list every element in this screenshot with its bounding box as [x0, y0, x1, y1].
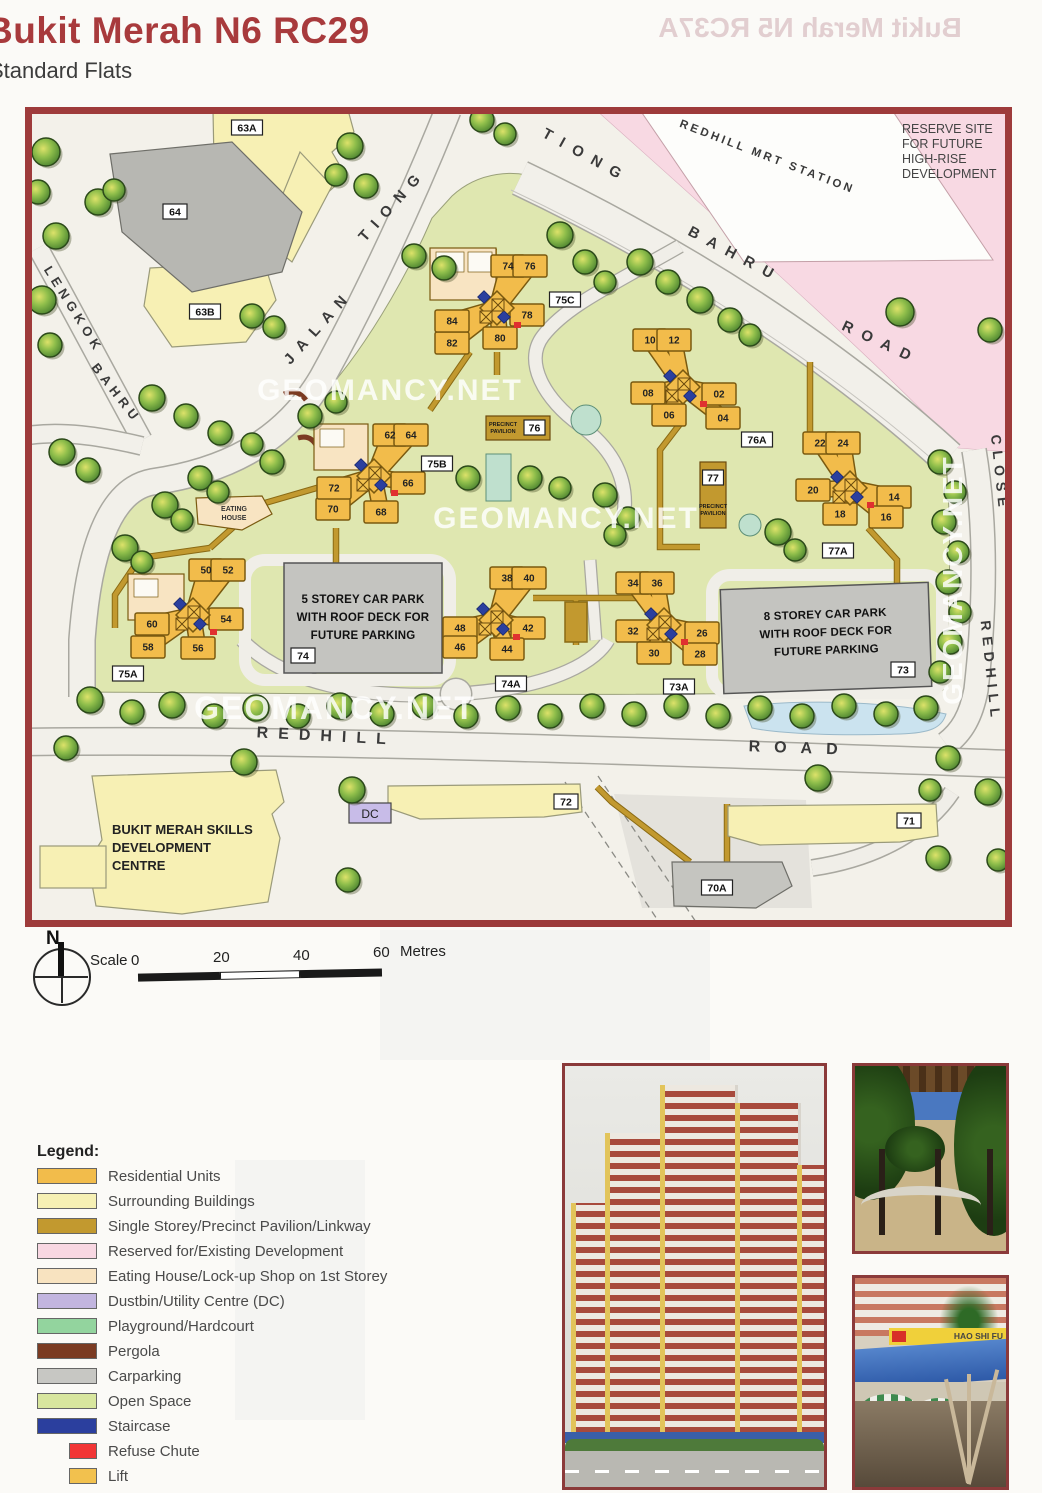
tree-icon: [131, 551, 153, 573]
scanned-page: Bukit Merah N6 RC29 Standard Flats Bukit…: [0, 0, 1042, 1493]
svg-text:RESERVE SITE: RESERVE SITE: [902, 122, 993, 136]
map-label-75A: 75A: [113, 666, 144, 681]
block-number: 76: [524, 262, 536, 273]
block-number: 58: [142, 643, 154, 654]
scale-unit: Metres: [400, 943, 446, 960]
tree-icon: [978, 318, 1002, 342]
tree-icon: [240, 304, 264, 328]
block-number: 38: [501, 574, 513, 585]
block-number: 06: [663, 411, 675, 422]
legend-label: Dustbin/Utility Centre (DC): [108, 1293, 285, 1310]
tower-block: [735, 1103, 801, 1433]
legend-swatch: [37, 1368, 97, 1384]
svg-text:63B: 63B: [195, 307, 215, 319]
tree-icon: [926, 846, 950, 870]
map-label-77A: 77A: [823, 543, 854, 558]
carpark5-text-2: WITH ROOF DECK FOR: [297, 612, 430, 624]
svg-text:77: 77: [707, 473, 719, 485]
block-number: 82: [446, 339, 458, 350]
tree-icon: [120, 700, 144, 724]
refuse-chute-icon: [513, 634, 520, 640]
site-map: EATING HOUSE 5 STOREY CAR PARK WITH ROOF…: [25, 107, 1012, 927]
tree-icon: [975, 779, 1001, 805]
linkway-shelter: [565, 602, 587, 642]
legend-swatch: [37, 1418, 97, 1434]
refuse-chute-icon: [700, 401, 707, 407]
legend-swatch: [37, 1293, 97, 1309]
legend-label: Refuse Chute: [108, 1443, 200, 1460]
block-number: 78: [521, 311, 533, 322]
block-number: 74: [502, 262, 514, 273]
legend-label: Residential Units: [108, 1168, 221, 1185]
scale-tick-40: 40: [293, 947, 310, 964]
block-number: 42: [522, 624, 534, 635]
tree-icon: [139, 385, 165, 411]
map-label-63A: 63A: [232, 120, 263, 135]
map-label-64: 64: [163, 204, 187, 219]
block-number: 84: [446, 317, 458, 328]
scale-tick-0: 0: [131, 952, 139, 969]
block-number: 40: [523, 574, 535, 585]
tree-icon: [456, 466, 480, 490]
tree-icon: [765, 519, 791, 545]
legend-label: Surrounding Buildings: [108, 1193, 255, 1210]
legend-label: Playground/Hardcourt: [108, 1318, 254, 1335]
block-number: 44: [501, 645, 513, 656]
block-number: 02: [713, 390, 725, 401]
tree-icon: [832, 694, 856, 718]
photo-road: [565, 1451, 824, 1487]
tree-icon: [936, 746, 960, 770]
svg-text:76: 76: [529, 423, 541, 435]
tree-icon: [987, 849, 1005, 871]
tree-icon: [573, 250, 597, 274]
map-label-76A: 76A: [742, 432, 773, 447]
block-number: 64: [405, 431, 417, 442]
eating-house-label-2: HOUSE: [222, 515, 247, 522]
block-number: 08: [642, 389, 654, 400]
legend-heading: Legend:: [37, 1143, 99, 1161]
map-label-74: 74: [291, 648, 315, 663]
svg-text:63A: 63A: [237, 123, 257, 135]
block-number: 36: [651, 579, 663, 590]
block-number: 20: [807, 486, 819, 497]
block-number: 30: [648, 649, 660, 660]
page-title: Bukit Merah N6 RC29: [0, 10, 370, 52]
svg-text:HIGH-RISE: HIGH-RISE: [902, 152, 967, 166]
watermark: GEOMANCY.NET: [433, 502, 699, 535]
block-number: 46: [454, 643, 466, 654]
svg-text:PAVILION: PAVILION: [490, 429, 515, 435]
map-label-74A: 74A: [496, 676, 527, 691]
block-number: 22: [814, 439, 826, 450]
block-number: 70: [327, 505, 339, 516]
tree-icon: [494, 123, 516, 145]
pergola-post: [987, 1149, 993, 1235]
tree-icon: [159, 692, 185, 718]
tree-icon: [580, 694, 604, 718]
svg-text:DEVELOPMENT: DEVELOPMENT: [112, 840, 211, 855]
watermark: GEOMANCY.NET: [257, 374, 523, 407]
legend-label: Pergola: [108, 1343, 160, 1360]
tree-icon: [43, 223, 69, 249]
svg-text:FOR FUTURE: FOR FUTURE: [902, 137, 983, 151]
tree-icon: [54, 736, 78, 760]
tree-icon: [208, 421, 232, 445]
block-number: 24: [837, 439, 849, 450]
tree-icon: [32, 180, 50, 204]
watermark: GEOMANCY.NET: [194, 690, 476, 726]
svg-text:PAVILION: PAVILION: [700, 511, 725, 517]
scale-tick-60: 60: [373, 944, 390, 961]
tree-icon: [549, 477, 571, 499]
svg-text:75B: 75B: [427, 459, 447, 471]
block-number: 28: [694, 650, 706, 661]
ghost-showthrough-title: Bukit Merah N5 RC37A: [610, 12, 1010, 44]
compass-needle: [58, 942, 64, 976]
tree-icon: [664, 694, 688, 718]
tree-icon: [298, 404, 322, 428]
scale-tick-20: 20: [213, 949, 230, 966]
watermark: GEOMANCY.NET: [937, 455, 968, 705]
legend-label: Lift: [108, 1468, 128, 1485]
tree-icon: [432, 256, 456, 280]
dc-label: DC: [361, 807, 379, 821]
tree-icon: [263, 316, 285, 338]
tree-icon: [790, 704, 814, 728]
tree-icon: [325, 164, 347, 186]
tower-blocks-photo: [562, 1063, 827, 1490]
svg-text:77A: 77A: [828, 546, 848, 558]
tree-icon: [171, 509, 193, 531]
shopfront-photo: HAO SHI FU: [852, 1275, 1009, 1490]
road-markings: [565, 1470, 824, 1473]
curved-wall: [861, 1186, 981, 1225]
map-label-73A: 73A: [664, 679, 695, 694]
legend-label: Reserved for/Existing Development: [108, 1243, 343, 1260]
block-number: 16: [880, 513, 892, 524]
block-number: 34: [627, 579, 639, 590]
block-number: 12: [668, 336, 680, 347]
svg-text:70A: 70A: [707, 883, 727, 895]
block-number: 50: [200, 566, 212, 577]
tower-block: [571, 1203, 609, 1433]
tree-icon: [103, 179, 125, 201]
legend-swatch: [37, 1243, 97, 1259]
tree-icon: [706, 704, 730, 728]
tower-block: [605, 1133, 663, 1433]
svg-text:75A: 75A: [118, 669, 138, 681]
tree-icon: [739, 324, 761, 346]
legend-swatch: [37, 1168, 97, 1184]
road-road-south: ROAD: [748, 738, 852, 759]
tree-icon: [76, 458, 100, 482]
refuse-chute-icon: [210, 629, 217, 635]
eating-house-label-1: EATING: [221, 506, 247, 513]
map-label-73: 73: [891, 662, 915, 677]
scale-label: Scale: [90, 952, 128, 969]
block-number: 72: [328, 484, 340, 495]
tree-icon: [38, 333, 62, 357]
refuse-chute-icon: [681, 639, 688, 645]
tree-icon: [518, 466, 542, 490]
legend-swatch: [37, 1343, 97, 1359]
tree-icon: [687, 287, 713, 313]
tree-icon: [49, 439, 75, 465]
tower-block: [660, 1085, 738, 1433]
tree-icon: [784, 539, 806, 561]
refuse-chute-icon: [514, 322, 521, 328]
block-number: 56: [192, 644, 204, 655]
tree-icon: [547, 222, 573, 248]
tree-icon: [260, 450, 284, 474]
svg-text:CENTRE: CENTRE: [112, 858, 166, 873]
tree-icon: [241, 433, 263, 455]
svg-text:73A: 73A: [669, 682, 689, 694]
refuse-chute-icon: [867, 502, 874, 508]
svg-text:74A: 74A: [501, 679, 521, 691]
legend-swatch: [69, 1443, 97, 1459]
legend-label: Eating House/Lock-up Shop on 1st Storey: [108, 1268, 387, 1285]
precinct-pavilion-77: 77 PRECINCT PAVILION: [699, 462, 728, 528]
svg-text:72: 72: [560, 797, 572, 809]
legend-swatch: [37, 1268, 97, 1284]
tree-icon: [337, 133, 363, 159]
map-label-63B: 63B: [190, 304, 221, 319]
block-number: 18: [834, 510, 846, 521]
block-number: 10: [644, 336, 656, 347]
tree-icon: [874, 702, 898, 726]
legend-label: Open Space: [108, 1393, 191, 1410]
map-label-71: 71: [897, 813, 921, 828]
block-number: 52: [222, 566, 234, 577]
tree-icon: [470, 114, 494, 132]
block-number: 66: [402, 479, 414, 490]
map-label-75C: 75C: [550, 292, 581, 307]
block-number: 68: [375, 508, 387, 519]
tree-icon: [656, 270, 680, 294]
refuse-chute-icon: [391, 490, 398, 496]
carpark5-text-3: FUTURE PARKING: [311, 630, 416, 642]
svg-text:73: 73: [897, 665, 909, 677]
block-number: 14: [888, 493, 900, 504]
tree-icon: [77, 687, 103, 713]
svg-text:74: 74: [297, 651, 309, 663]
block-number: 32: [627, 627, 639, 638]
svg-text:PRECINCT: PRECINCT: [699, 504, 728, 510]
tree-icon: [914, 696, 938, 720]
tree-icon: [805, 765, 831, 791]
legend-label: Single Storey/Precinct Pavilion/Linkway: [108, 1218, 371, 1235]
block-number: 04: [717, 414, 729, 425]
svg-text:75C: 75C: [555, 295, 575, 307]
block-number: 26: [696, 629, 708, 640]
map-label-72: 72: [554, 794, 578, 809]
tree-icon: [594, 271, 616, 293]
scale-bar: [138, 968, 384, 981]
legend-label: Staircase: [108, 1418, 171, 1435]
tree-icon: [32, 138, 60, 166]
block-number: 48: [454, 624, 466, 635]
legend-swatch: [37, 1193, 97, 1209]
tree-icon: [339, 777, 365, 803]
svg-text:PRECINCT: PRECINCT: [489, 422, 518, 428]
precinct-pavilion-76: PRECINCT PAVILION 76: [486, 416, 550, 440]
tree-icon: [496, 696, 520, 720]
block-number: 54: [220, 615, 232, 626]
legend-swatch: [37, 1218, 97, 1234]
block-number: 62: [384, 431, 396, 442]
svg-text:64: 64: [169, 207, 181, 219]
carpark5-text-1: 5 STOREY CAR PARK: [302, 594, 425, 606]
tree-icon: [207, 481, 229, 503]
svg-text:76A: 76A: [747, 435, 767, 447]
pergola-walkway-photo: [852, 1063, 1009, 1254]
legend-swatch: [69, 1468, 97, 1484]
legend-swatch: [37, 1318, 97, 1334]
svg-text:DEVELOPMENT: DEVELOPMENT: [902, 167, 997, 181]
map-label-70A: 70A: [702, 880, 733, 895]
tree-icon: [886, 298, 914, 326]
tree-icon: [919, 779, 941, 801]
tower-block: [797, 1165, 827, 1433]
tree-icon: [627, 249, 653, 275]
tree-icon: [402, 244, 426, 268]
tree-icon: [32, 286, 56, 314]
sign-logo: [892, 1331, 906, 1342]
legend-label: Carparking: [108, 1368, 181, 1385]
map-label-75B: 75B: [422, 456, 453, 471]
tree-icon: [748, 696, 772, 720]
tree-icon: [354, 174, 378, 198]
tree-icon: [538, 704, 562, 728]
tree-icon: [336, 868, 360, 892]
tree-icon: [174, 404, 198, 428]
block-number: 80: [494, 334, 506, 345]
page-subtitle: Standard Flats: [0, 58, 132, 84]
svg-text:71: 71: [903, 816, 915, 828]
tree-icon: [622, 702, 646, 726]
block-number: 60: [146, 620, 158, 631]
legend-swatch: [37, 1393, 97, 1409]
tree-icon: [718, 308, 742, 332]
tree-icon: [231, 749, 257, 775]
svg-text:BUKIT MERAH SKILLS: BUKIT MERAH SKILLS: [112, 822, 253, 837]
